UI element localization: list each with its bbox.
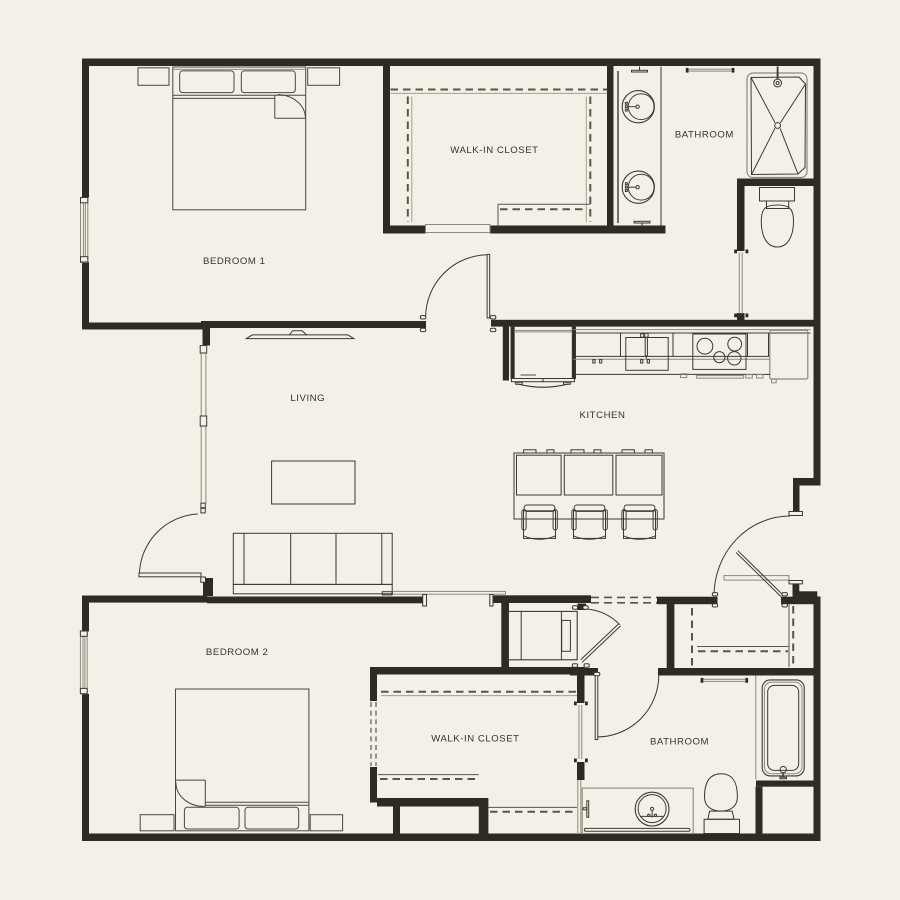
svg-text:WALK-IN CLOSET: WALK-IN CLOSET bbox=[431, 733, 519, 744]
svg-text:WALK-IN CLOSET: WALK-IN CLOSET bbox=[450, 145, 538, 156]
svg-text:BATHROOM: BATHROOM bbox=[675, 130, 734, 141]
svg-text:BEDROOM 2: BEDROOM 2 bbox=[206, 647, 269, 658]
svg-text:BATHROOM: BATHROOM bbox=[650, 737, 709, 748]
svg-text:BEDROOM 1: BEDROOM 1 bbox=[203, 256, 266, 267]
svg-text:KITCHEN: KITCHEN bbox=[580, 410, 626, 421]
svg-text:LIVING: LIVING bbox=[290, 393, 325, 404]
